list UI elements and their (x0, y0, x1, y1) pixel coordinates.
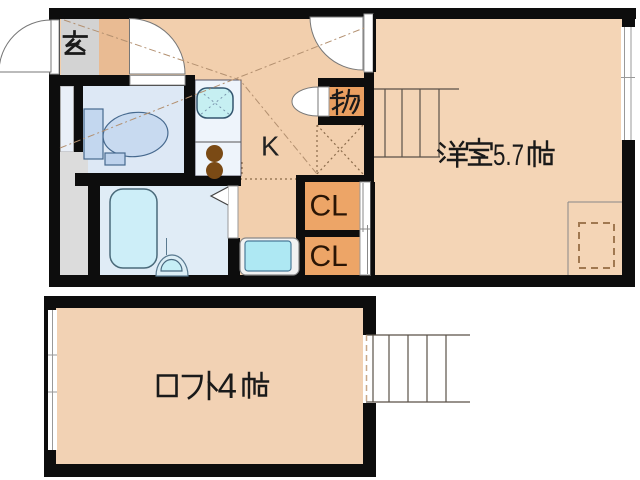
svg-text:K: K (261, 131, 280, 162)
svg-text:4: 4 (218, 367, 237, 406)
svg-text:CL: CL (310, 190, 348, 223)
svg-text:5.7: 5.7 (493, 139, 524, 172)
svg-text:CL: CL (310, 240, 348, 273)
